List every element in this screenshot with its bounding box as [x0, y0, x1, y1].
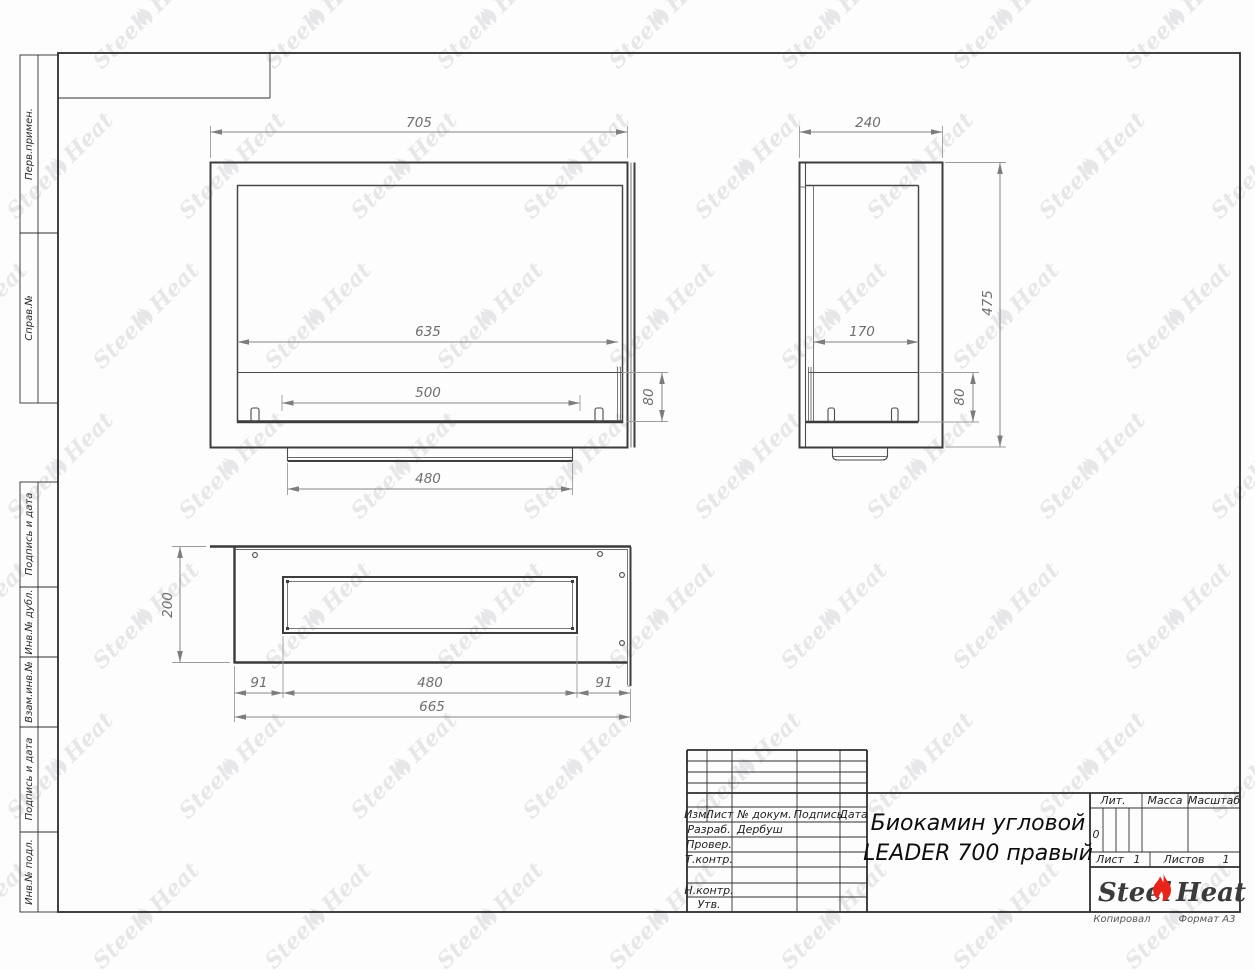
watermark — [2, 107, 119, 224]
watermark — [518, 107, 635, 224]
dim-front-base: 480 — [415, 471, 441, 487]
row-nkontr: Н.контр. — [684, 884, 733, 897]
row-razrab: Разраб. — [687, 823, 730, 836]
watermark — [948, 0, 1065, 74]
dim-front-width: 705 — [406, 115, 432, 131]
watermark — [260, 857, 377, 970]
doc-title-line2: LEADER 700 правый — [863, 841, 1093, 866]
watermark — [690, 107, 807, 224]
watermark — [1120, 0, 1237, 74]
dim-side-opening: 170 — [849, 324, 875, 340]
watermark — [690, 407, 807, 524]
dim-side-tray: 80 — [952, 388, 968, 405]
watermark — [260, 257, 377, 374]
dim-top-right: 91 — [595, 675, 612, 691]
copied-label: Копировал — [1093, 914, 1151, 925]
sheets-label: Листов — [1162, 853, 1204, 866]
watermark — [1034, 107, 1151, 224]
watermark — [1034, 707, 1151, 824]
watermark — [432, 857, 549, 970]
top-view: 200 91 480 91 665 — [160, 546, 631, 722]
watermark — [88, 257, 205, 374]
watermark — [518, 407, 635, 524]
watermark — [2, 407, 119, 524]
watermark — [88, 0, 205, 74]
drawing-sheet: Steel Heat Перв.примен. Справ.№ Подпись … — [0, 0, 1255, 970]
watermark — [346, 707, 463, 824]
lit-label: Лит. — [1099, 794, 1125, 807]
watermark — [1034, 407, 1151, 524]
col-list: Лист — [705, 808, 734, 821]
watermark — [604, 557, 721, 674]
row-prover: Провер. — [686, 838, 732, 851]
watermark — [776, 0, 893, 74]
dim-front-tray: 80 — [641, 388, 657, 405]
top-left-stamp — [58, 53, 270, 98]
margin-label-vzam-inv: Взам.инв.№ — [24, 661, 35, 723]
watermark — [948, 557, 1065, 674]
scale-label: Масштаб — [1188, 794, 1240, 807]
dim-top-left: 91 — [250, 675, 267, 691]
col-sign: Подпись — [794, 808, 843, 821]
steel-heat-logo: Steel Heat — [1098, 873, 1246, 908]
watermark — [88, 557, 205, 674]
watermark — [260, 0, 377, 74]
watermark — [862, 407, 979, 524]
watermark — [604, 0, 721, 74]
watermark — [346, 407, 463, 524]
sheets-value: 1 — [1223, 853, 1230, 866]
razrab-value: Дербуш — [736, 823, 783, 836]
margin-label-perv-primen: Перв.примен. — [24, 108, 35, 180]
watermark — [88, 857, 205, 970]
watermark — [432, 557, 549, 674]
mass-label: Масса — [1147, 794, 1182, 807]
col-date: Дата — [838, 808, 868, 821]
margin-label-podpis-data-1: Подпись и дата — [24, 493, 35, 576]
watermark — [604, 857, 721, 970]
doc-title-line1: Биокамин угловой — [871, 811, 1086, 836]
watermark — [260, 557, 377, 674]
logo-text-heat: Heat — [1175, 878, 1246, 908]
watermark — [174, 107, 291, 224]
row-tkontr: Т.контр. — [685, 853, 733, 866]
dim-front-opening: 635 — [415, 324, 441, 340]
watermark — [776, 257, 893, 374]
watermark — [518, 707, 635, 824]
dim-side-depth: 240 — [855, 115, 881, 131]
watermark — [346, 107, 463, 224]
title-block: Изм. Лист № докум. Подпись Дата Разраб. … — [684, 750, 1246, 912]
watermark — [432, 0, 549, 74]
watermark — [1120, 557, 1237, 674]
watermark — [948, 857, 1065, 970]
watermark — [432, 257, 549, 374]
dim-top-slot: 480 — [417, 675, 443, 691]
page: Steel Heat Перв.примен. Справ.№ Подпись … — [0, 0, 1255, 970]
sheet-value: 1 — [1134, 853, 1141, 866]
format-label: Формат А3 — [1179, 914, 1236, 925]
watermark — [776, 857, 893, 970]
watermark — [174, 707, 291, 824]
dim-top-total: 665 — [419, 699, 445, 715]
margin-label-podpis-data-2: Подпись и дата — [24, 738, 35, 821]
watermark — [1206, 407, 1255, 524]
watermark — [604, 257, 721, 374]
watermark — [2, 707, 119, 824]
watermark — [174, 407, 291, 524]
watermark — [1120, 257, 1237, 374]
margin-label-inv-dubl: Инв.№ дубл. — [23, 589, 35, 654]
margin-label-inv-podl: Инв.№ подл. — [24, 839, 35, 905]
dim-side-height: 475 — [980, 290, 996, 316]
watermark — [776, 557, 893, 674]
dim-front-burner: 500 — [415, 385, 441, 401]
watermark — [0, 0, 33, 74]
row-utv: Утв. — [697, 898, 720, 911]
watermark — [948, 257, 1065, 374]
watermark — [862, 707, 979, 824]
lit-value: 0 — [1093, 828, 1100, 841]
watermark — [1206, 107, 1255, 224]
margin-label-sprav-no: Справ.№ — [24, 295, 35, 340]
sheet-label: Лист — [1095, 853, 1124, 866]
dim-top-depth: 200 — [160, 592, 176, 618]
col-doc: № докум. — [736, 808, 791, 821]
